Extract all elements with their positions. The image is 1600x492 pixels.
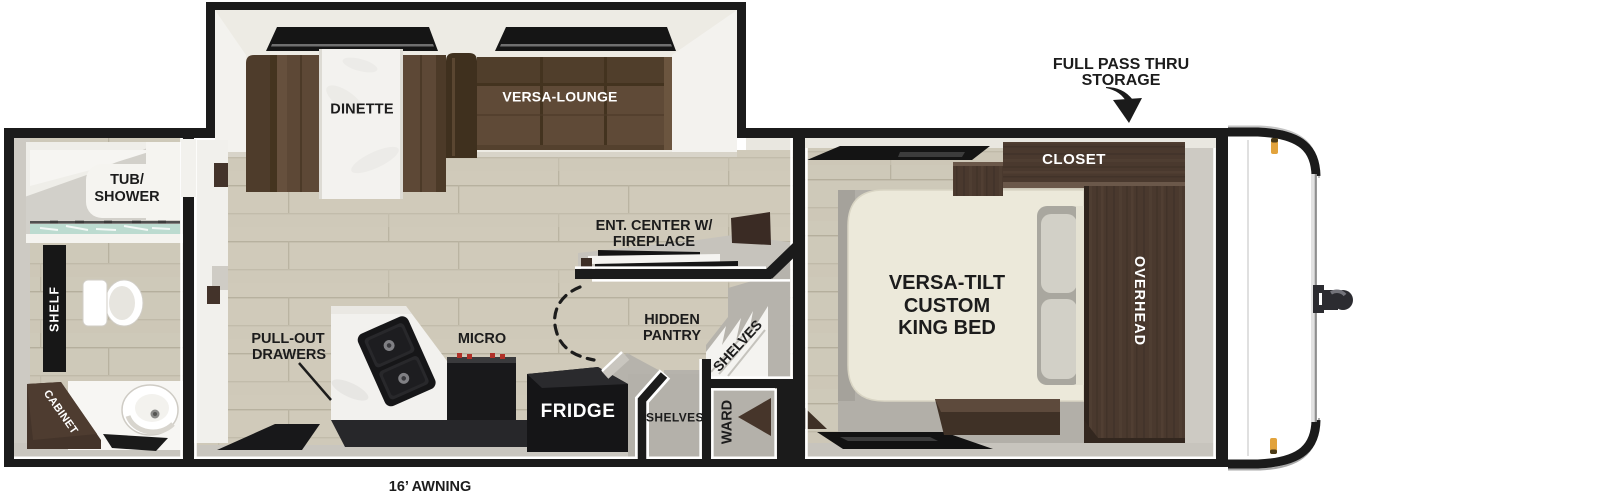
svg-text:SHOWER: SHOWER	[94, 189, 160, 205]
svg-text:FIREPLACE: FIREPLACE	[613, 234, 696, 250]
svg-text:ENT. CENTER W/: ENT. CENTER W/	[596, 218, 713, 234]
svg-text:FRIDGE: FRIDGE	[541, 401, 616, 422]
svg-text:SHELVES: SHELVES	[646, 411, 704, 425]
svg-text:KING BED: KING BED	[898, 317, 996, 339]
svg-text:16’ AWNING: 16’ AWNING	[389, 479, 471, 492]
svg-text:VERSA-TILT: VERSA-TILT	[889, 272, 1005, 294]
svg-text:CUSTOM: CUSTOM	[904, 295, 990, 317]
svg-text:PULL-OUT: PULL-OUT	[251, 331, 324, 347]
svg-text:STORAGE: STORAGE	[1082, 72, 1161, 89]
svg-text:DRAWERS: DRAWERS	[252, 347, 326, 363]
svg-text:SHELF: SHELF	[48, 286, 62, 332]
svg-text:MICRO: MICRO	[458, 331, 506, 347]
svg-text:OVERHEAD: OVERHEAD	[1131, 256, 1147, 346]
svg-text:VERSA-LOUNGE: VERSA-LOUNGE	[502, 89, 617, 105]
svg-text:WARD: WARD	[720, 400, 736, 444]
svg-text:CLOSET: CLOSET	[1042, 151, 1106, 168]
svg-text:HIDDEN: HIDDEN	[644, 312, 700, 328]
svg-text:DINETTE: DINETTE	[330, 102, 394, 118]
svg-text:TUB/: TUB/	[110, 172, 144, 188]
svg-text:FULL PASS THRU: FULL PASS THRU	[1053, 56, 1189, 73]
svg-text:PANTRY: PANTRY	[643, 328, 701, 344]
